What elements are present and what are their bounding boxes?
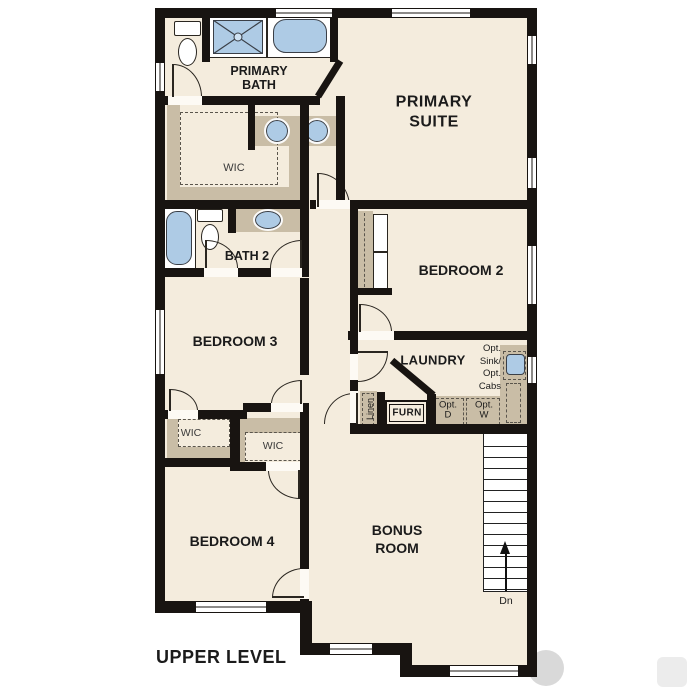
opt-washer-label: Opt. W	[475, 401, 493, 422]
dashed-outline	[506, 383, 521, 423]
room-label-bedroom2: BEDROOM 2	[419, 263, 504, 279]
page-title: UPPER LEVEL	[156, 647, 287, 667]
door-leaf	[205, 240, 207, 268]
vanity-sink-fixture	[266, 120, 288, 142]
door-opening	[316, 200, 350, 209]
wall	[300, 598, 309, 613]
wall	[300, 403, 309, 570]
door-opening	[266, 462, 300, 471]
window	[155, 63, 165, 91]
stair-direction-arrow	[505, 553, 507, 591]
floor-plan: PRIMARY BATH PRIMARY SUITE WIC BATH 2 BE…	[0, 0, 687, 687]
window	[527, 357, 537, 383]
closet-door-panel	[373, 214, 388, 252]
wall	[155, 458, 240, 467]
casework	[167, 105, 180, 200]
stair-tread	[484, 490, 527, 491]
door-opening	[204, 268, 238, 277]
bathtub-fixture	[273, 19, 327, 53]
stair-tread	[484, 534, 527, 535]
door-opening	[350, 354, 358, 380]
room-label-bedroom4: BEDROOM 4	[190, 534, 275, 550]
toilet-bowl-fixture	[178, 38, 197, 66]
shower-pan-icon	[213, 20, 263, 54]
stairs-down-label: Dn	[499, 596, 512, 608]
wall	[356, 288, 392, 295]
floor-area	[405, 601, 532, 670]
door-leaf	[298, 470, 300, 499]
stair-tread	[484, 479, 527, 480]
stair-tread	[484, 512, 527, 513]
toilet-tank-fixture	[197, 209, 223, 222]
window	[276, 8, 332, 18]
door-leaf	[172, 64, 174, 97]
closet-rod-dashed-line	[364, 213, 365, 287]
watermark-corner	[657, 657, 687, 687]
room-label-wic-right: WIC	[263, 441, 283, 453]
door-opening	[300, 569, 309, 599]
toilet-tank-fixture	[174, 21, 201, 36]
room-label-bedroom3: BEDROOM 3	[193, 334, 278, 350]
window	[330, 643, 372, 655]
stair-tread	[484, 468, 527, 469]
casework	[167, 187, 302, 200]
door-leaf	[359, 304, 361, 332]
room-label-bonus-room: BONUS ROOM	[372, 521, 423, 557]
door-leaf	[272, 596, 304, 598]
window	[527, 36, 537, 64]
window	[450, 665, 518, 677]
plan-geometry	[0, 0, 687, 687]
laundry-sink-fixture	[506, 354, 525, 375]
floor-area	[305, 601, 405, 648]
wall	[300, 278, 309, 375]
window	[196, 601, 266, 613]
room-label-primary-bath: PRIMARY BATH	[230, 64, 287, 92]
door-opening	[271, 268, 302, 277]
wall	[336, 96, 345, 209]
wall	[202, 8, 210, 62]
wall	[350, 424, 537, 434]
wall	[155, 8, 537, 18]
linen-label: Linen	[365, 398, 375, 420]
wall	[228, 205, 236, 233]
door-leaf	[169, 389, 171, 411]
door-leaf	[356, 393, 358, 424]
door-opening	[271, 403, 303, 412]
window	[527, 246, 537, 304]
window	[392, 8, 470, 18]
stair-tread	[484, 501, 527, 502]
closet-door-panel	[373, 252, 388, 290]
laundry-opt-sink-cabs-note: Opt. Sink/ Opt. Cabs	[455, 343, 501, 394]
window	[155, 310, 165, 374]
bathtub-fixture	[166, 211, 192, 265]
room-label-wic-primary: WIC	[223, 162, 244, 174]
wall	[527, 8, 537, 677]
wall	[248, 96, 255, 150]
door-opening	[168, 96, 202, 105]
stair-arrow-head-icon	[500, 541, 510, 554]
room-label-primary-suite: PRIMARY SUITE	[396, 92, 473, 131]
vanity-sink-fixture	[306, 120, 328, 142]
furnace-label: FURN	[392, 407, 421, 418]
room-label-wic-left: WIC	[181, 428, 201, 440]
stair-tread	[484, 523, 527, 524]
bath2-sink-fixture	[255, 211, 281, 229]
opt-dryer-label: Opt. D	[439, 401, 457, 422]
door-leaf	[300, 240, 302, 268]
wall	[330, 13, 338, 62]
stair-tread	[484, 446, 527, 447]
door-leaf	[358, 351, 388, 353]
door-opening	[358, 331, 394, 340]
room-label-bath2: BATH 2	[225, 249, 269, 263]
wall	[350, 200, 358, 340]
window	[527, 158, 537, 188]
door-opening	[168, 410, 198, 419]
door-leaf	[300, 380, 302, 404]
stair-tread	[484, 457, 527, 458]
wall	[350, 340, 358, 354]
door-leaf	[317, 173, 319, 207]
